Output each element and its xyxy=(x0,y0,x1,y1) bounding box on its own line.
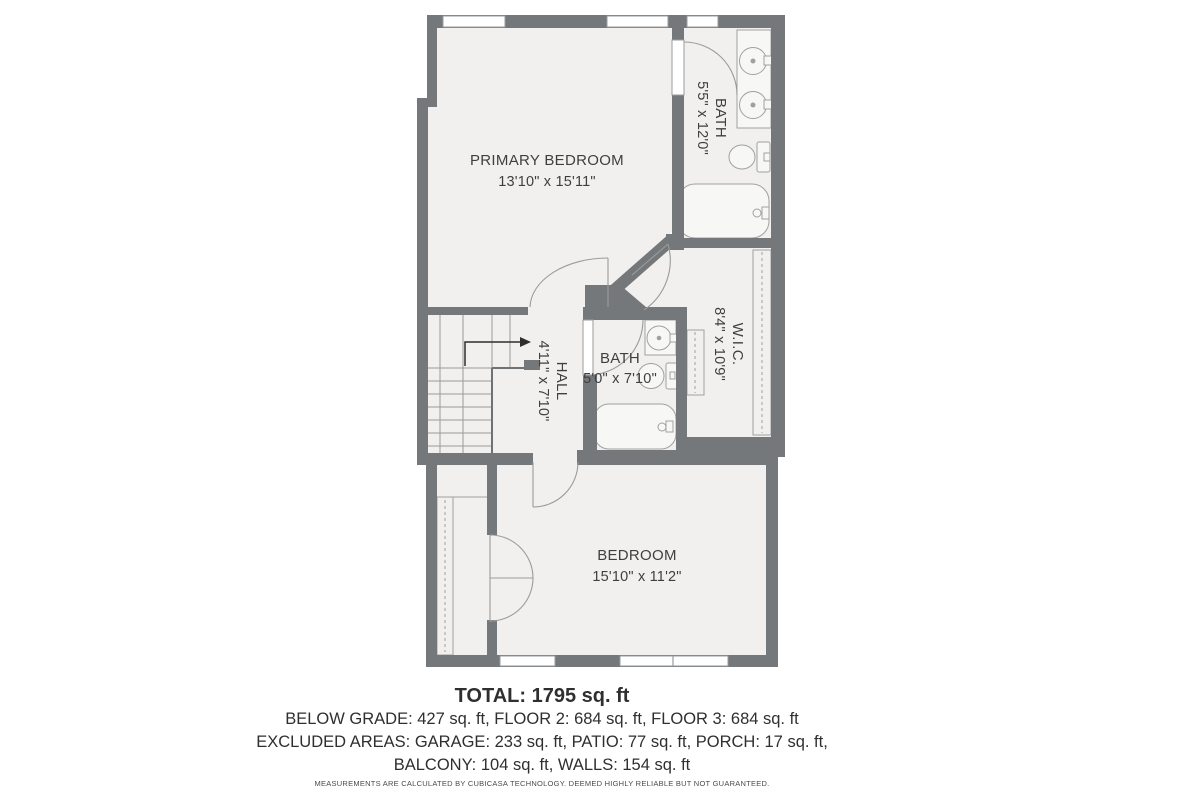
vanity-icon xyxy=(737,30,772,128)
bedroom-label: BEDROOM xyxy=(597,547,677,564)
floor-plan: PRIMARY BEDROOM 13'10" x 15'11" BATH 5'5… xyxy=(0,0,1200,800)
window xyxy=(607,16,668,27)
primary-bedroom-label: PRIMARY BEDROOM xyxy=(470,152,624,169)
bedroom-dimensions: 15'10" x 11'2" xyxy=(592,569,681,585)
window xyxy=(443,16,505,27)
total-area-text: TOTAL: 1795 sq. ft xyxy=(0,684,1084,708)
bath-top-dimensions: 5'5" x 12'0" xyxy=(694,81,710,155)
hall-label: HALL xyxy=(553,362,570,401)
primary-bedroom-dimensions: 13'10" x 15'11" xyxy=(498,174,596,190)
excluded-areas-text-2: BALCONY: 104 sq. ft, WALLS: 154 sq. ft xyxy=(0,754,1084,777)
floor-areas-text: BELOW GRADE: 427 sq. ft, FLOOR 2: 684 sq… xyxy=(0,708,1084,731)
wic-label: W.I.C. xyxy=(729,323,746,366)
hall-dimensions: 4'11" x 7'10" xyxy=(535,340,551,421)
bath-mid-dimensions: 5'0" x 7'10" xyxy=(583,371,657,387)
window xyxy=(687,16,718,27)
excluded-areas-text: EXCLUDED AREAS: GARAGE: 233 sq. ft, PATI… xyxy=(0,731,1084,754)
window xyxy=(620,656,728,666)
area-summary: TOTAL: 1795 sq. ft BELOW GRADE: 427 sq. … xyxy=(0,684,1084,789)
bathtub-icon xyxy=(678,184,769,238)
bathtub-icon xyxy=(594,404,676,449)
bath-top-label: BATH xyxy=(712,98,729,138)
wic-dimensions: 8'4" x 10'9" xyxy=(711,307,727,381)
hall-bedroom-door-gap xyxy=(533,453,578,465)
disclaimer-text: MEASUREMENTS ARE CALCULATED BY CUBICASA … xyxy=(0,779,1084,789)
sink-icon xyxy=(645,320,677,355)
window xyxy=(500,656,555,666)
bath-mid-label: BATH xyxy=(600,350,640,367)
